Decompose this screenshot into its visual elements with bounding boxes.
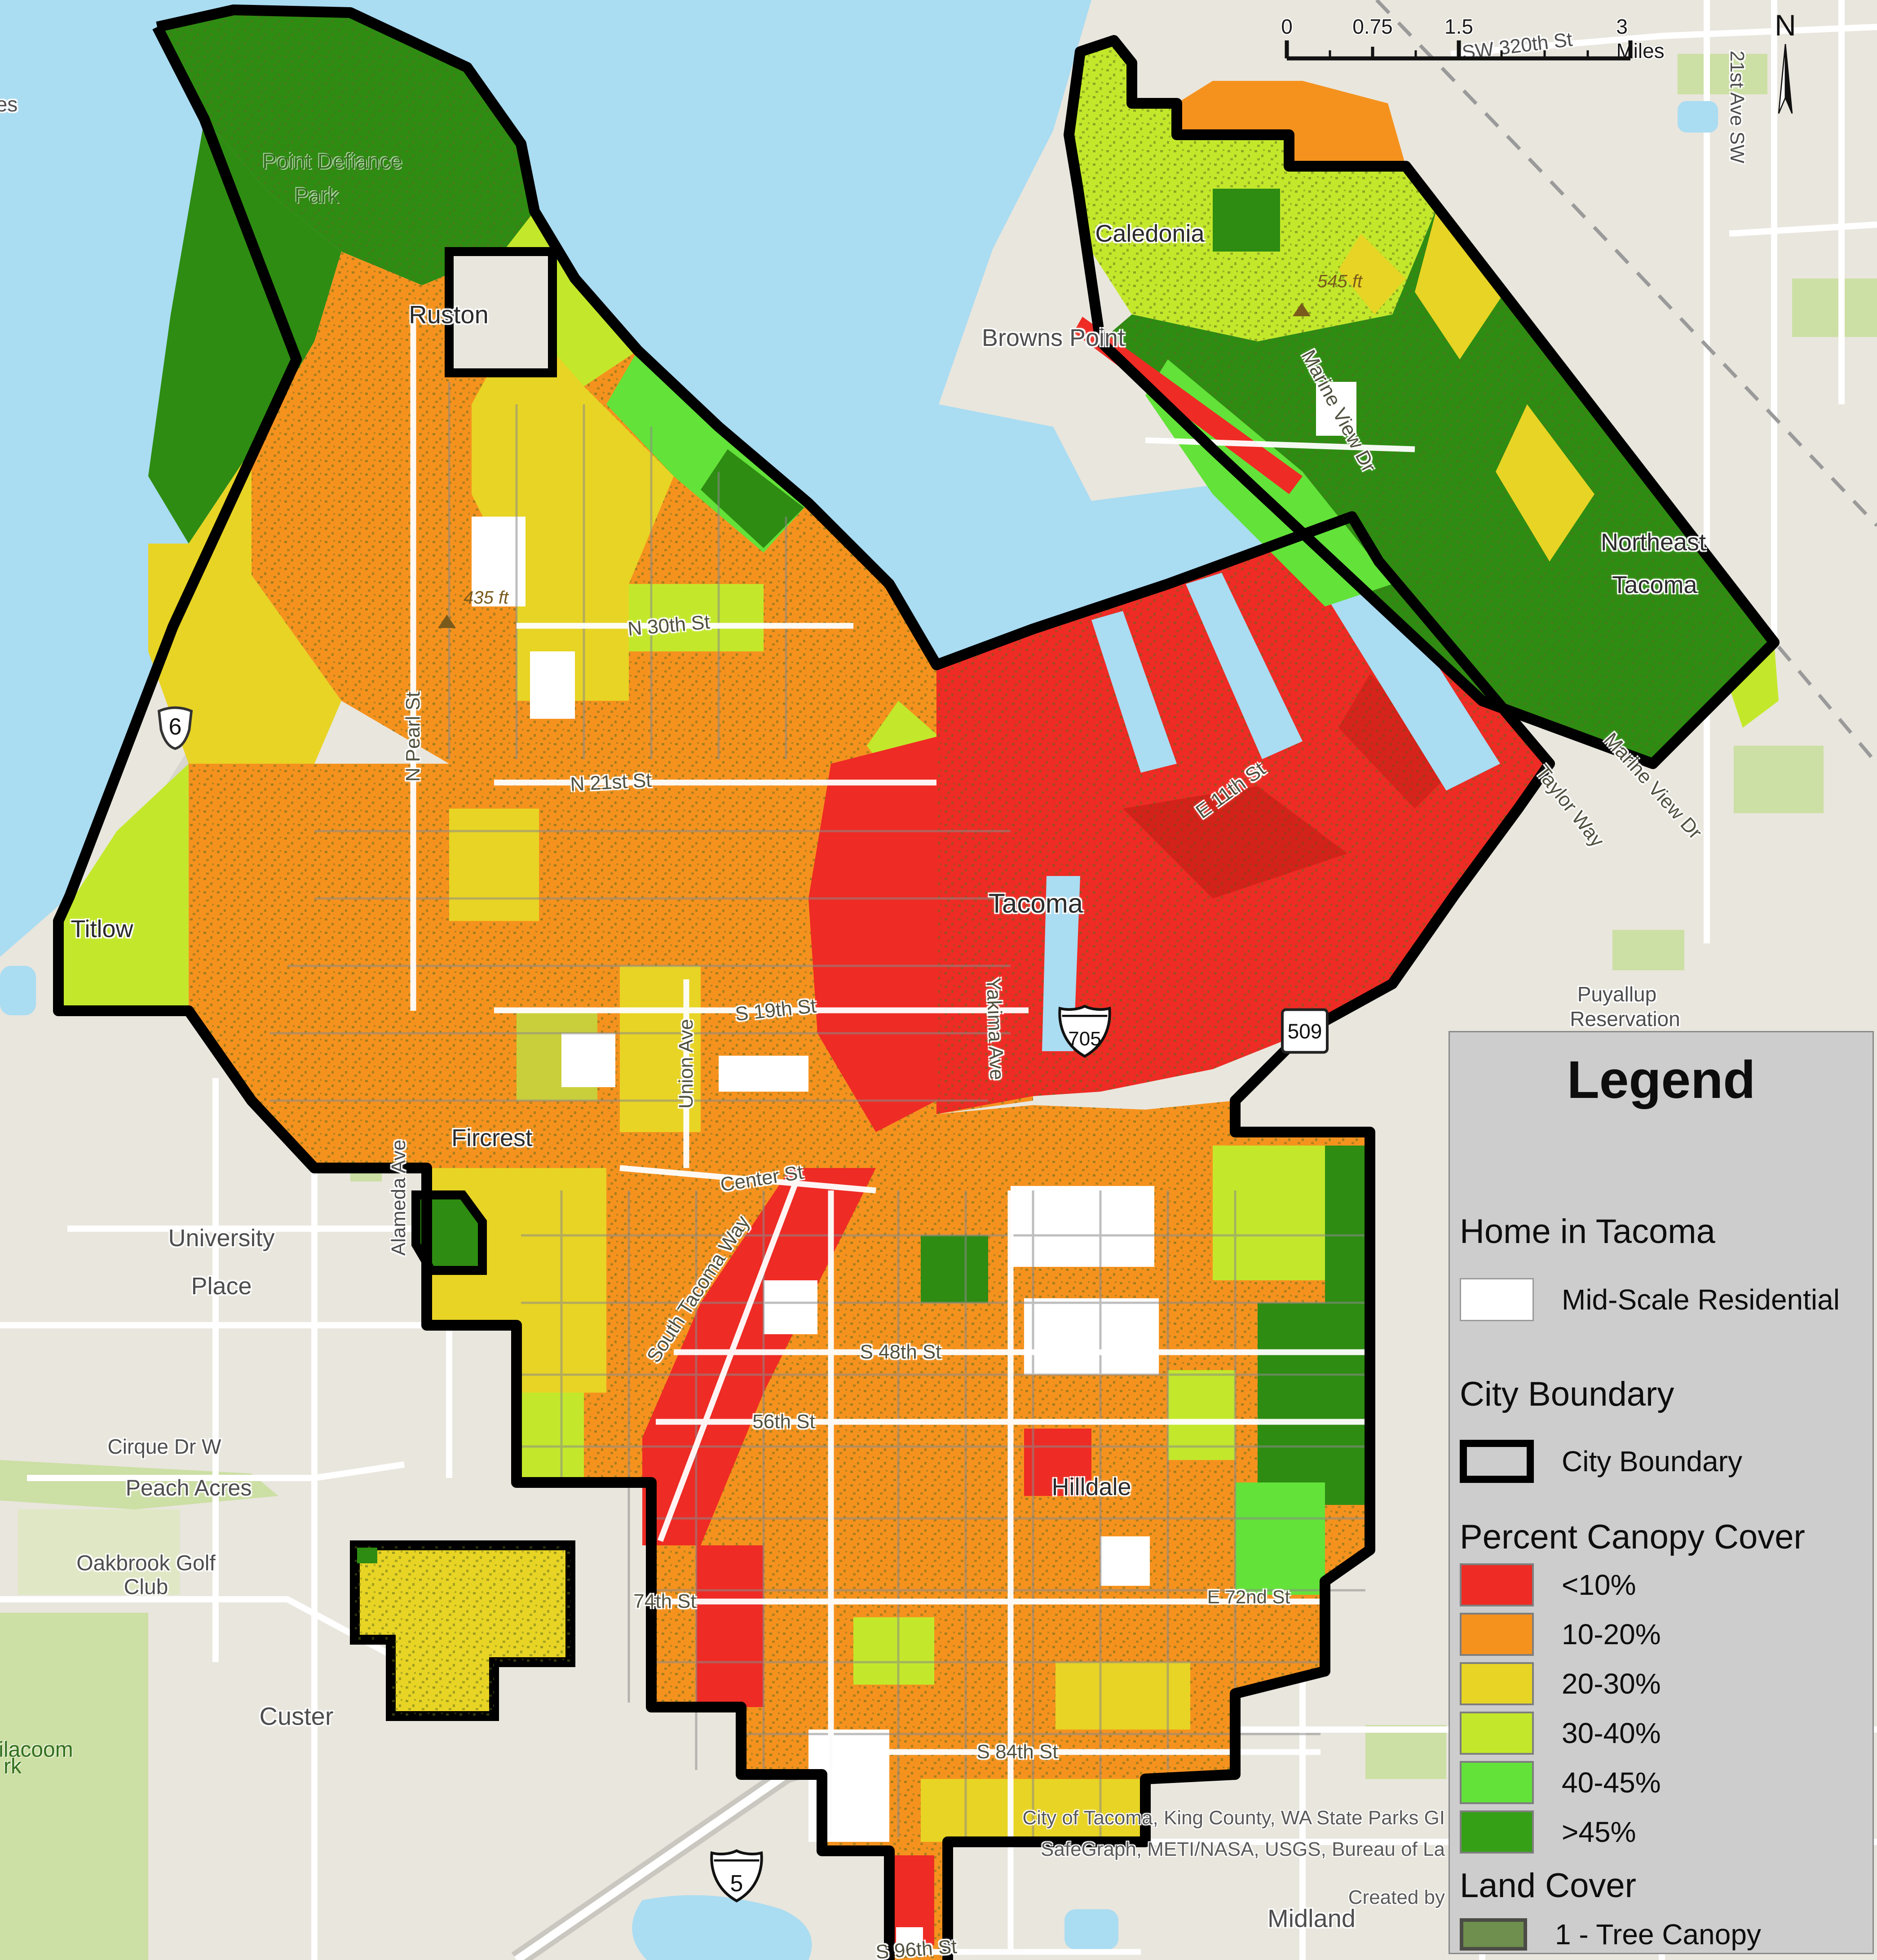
legend-item-label: 30-40% bbox=[1562, 1717, 1661, 1750]
legend-item-city-boundary: City Boundary bbox=[1460, 1439, 1742, 1484]
attribution-line3: Created by bbox=[1348, 1886, 1445, 1909]
legend-item-tree-canopy: 1 - Tree Canopy bbox=[1460, 1912, 1761, 1957]
sr16-shield: 6 bbox=[154, 702, 197, 752]
map-label: 435 ft bbox=[464, 588, 508, 608]
legend-item-label: City Boundary bbox=[1562, 1445, 1742, 1478]
legend-item-label: Mid-Scale Residential bbox=[1562, 1283, 1840, 1316]
map-label: 21st Ave SW bbox=[1726, 50, 1748, 163]
map-label: Titlow bbox=[71, 915, 133, 943]
map-label: es bbox=[0, 92, 18, 116]
map-label: Club bbox=[124, 1575, 168, 1600]
legend-panel: Legend Home in Tacoma Mid-Scale Resident… bbox=[1449, 1031, 1874, 1954]
map-label: 74th St bbox=[633, 1590, 696, 1613]
map-label: N Pearl St bbox=[402, 692, 424, 782]
map-label: Caledonia bbox=[1095, 220, 1204, 248]
canopy-lt10-swatch bbox=[1460, 1563, 1534, 1606]
north-arrow-label: N bbox=[1754, 8, 1817, 42]
legend-item-canopy-40-45: 40-45% bbox=[1460, 1760, 1661, 1805]
map-label: Alameda Ave bbox=[388, 1140, 410, 1256]
map-label: Midland bbox=[1268, 1904, 1356, 1933]
map-label: Park bbox=[295, 184, 339, 208]
map-label: Point Defiance bbox=[262, 150, 402, 174]
map-label: S 84th St bbox=[976, 1741, 1058, 1763]
map-label: Hilldale bbox=[1051, 1473, 1131, 1501]
map-label: Place bbox=[191, 1272, 252, 1300]
map-label: rk bbox=[4, 1754, 22, 1779]
north-arrow-icon bbox=[1772, 44, 1799, 116]
map-label: 545 ft bbox=[1317, 272, 1362, 292]
legend-title: Legend bbox=[1450, 1049, 1873, 1111]
canopy-40-45-swatch bbox=[1460, 1761, 1534, 1804]
sr509-shield: 509 bbox=[1280, 1008, 1329, 1055]
city-boundary-swatch bbox=[1460, 1440, 1534, 1483]
i705-shield: 705 bbox=[1058, 1004, 1112, 1058]
map-label: Puyallup bbox=[1577, 982, 1656, 1006]
legend-item-label: 20-30% bbox=[1562, 1667, 1661, 1700]
legend-item-canopy-30-40: 30-40% bbox=[1460, 1711, 1661, 1756]
map-label: Fircrest bbox=[451, 1124, 532, 1152]
i5-shield-number: 5 bbox=[710, 1849, 764, 1911]
scale-bar-graphic bbox=[1276, 37, 1671, 64]
canopy-10-20-swatch bbox=[1460, 1613, 1534, 1656]
legend-item-canopy-gt45: >45% bbox=[1460, 1810, 1636, 1854]
legend-item-canopy-20-30: 20-30% bbox=[1460, 1661, 1661, 1706]
map-label: Reservation bbox=[1570, 1007, 1680, 1031]
map-label: N 21st St bbox=[570, 769, 652, 796]
map-label: Ruston bbox=[409, 300, 488, 329]
sr509-shield-number: 509 bbox=[1280, 1008, 1329, 1055]
map-label: Cirque Dr W bbox=[107, 1434, 221, 1459]
i5-shield: 5 bbox=[710, 1849, 764, 1902]
legend-item-canopy-lt10: <10% bbox=[1460, 1562, 1636, 1607]
map-label: E 72nd St bbox=[1207, 1586, 1290, 1608]
i705-shield-number: 705 bbox=[1058, 1004, 1112, 1066]
map-canvas: esPoint DefianceParkRustonSW 320th St21s… bbox=[0, 0, 1877, 1960]
legend-item-label: <10% bbox=[1562, 1568, 1636, 1602]
mid-scale-residential-swatch bbox=[1460, 1278, 1534, 1321]
map-label: Yakima Ave bbox=[982, 977, 1008, 1080]
legend-section-landcover: Land Cover bbox=[1460, 1866, 1636, 1905]
legend-item-label: 40-45% bbox=[1562, 1766, 1661, 1799]
tree-canopy-swatch bbox=[1460, 1918, 1527, 1951]
legend-section-canopy: Percent Canopy Cover bbox=[1460, 1518, 1805, 1557]
legend-item-mid-scale-residential: Mid-Scale Residential bbox=[1460, 1277, 1840, 1322]
scale-label-075: 0.75 bbox=[1352, 14, 1393, 39]
sr16-shield-number: 6 bbox=[154, 702, 197, 752]
canopy-30-40-swatch bbox=[1460, 1712, 1534, 1755]
north-arrow: N bbox=[1754, 8, 1817, 120]
map-label: Tacoma bbox=[1612, 571, 1697, 599]
canopy-20-30-swatch bbox=[1460, 1662, 1534, 1705]
map-label: S 48th St bbox=[860, 1341, 941, 1363]
scale-label-15: 1.5 bbox=[1444, 14, 1473, 39]
map-label: Custer bbox=[260, 1702, 334, 1731]
map-label: Peach Acres bbox=[126, 1475, 252, 1501]
legend-section-home: Home in Tacoma bbox=[1460, 1212, 1715, 1251]
legend-item-label: >45% bbox=[1562, 1815, 1636, 1849]
scale-label-0: 0 bbox=[1281, 14, 1293, 39]
scale-bar: 0 0.75 1.5 3 Miles bbox=[1276, 10, 1671, 64]
canopy-gt45-swatch bbox=[1460, 1810, 1534, 1854]
map-label: University bbox=[168, 1224, 274, 1252]
map-label: Browns Point bbox=[982, 324, 1125, 352]
map-label: Union Ave bbox=[675, 1019, 698, 1109]
legend-item-label: 10-20% bbox=[1562, 1618, 1661, 1651]
map-label: 56th St bbox=[752, 1411, 815, 1433]
attribution-line1: City of Tacoma, King County, WA State Pa… bbox=[1022, 1807, 1445, 1829]
map-label: Northeast bbox=[1601, 528, 1706, 556]
attribution-line2: SafeGraph, METI/NASA, USGS, Bureau of La bbox=[1041, 1838, 1445, 1861]
map-label: Tacoma bbox=[989, 888, 1083, 919]
legend-item-canopy-10-20: 10-20% bbox=[1460, 1612, 1661, 1657]
map-label: Oakbrook Golf bbox=[76, 1551, 215, 1576]
legend-item-label: 1 - Tree Canopy bbox=[1555, 1918, 1761, 1951]
legend-section-city-boundary: City Boundary bbox=[1460, 1375, 1674, 1414]
